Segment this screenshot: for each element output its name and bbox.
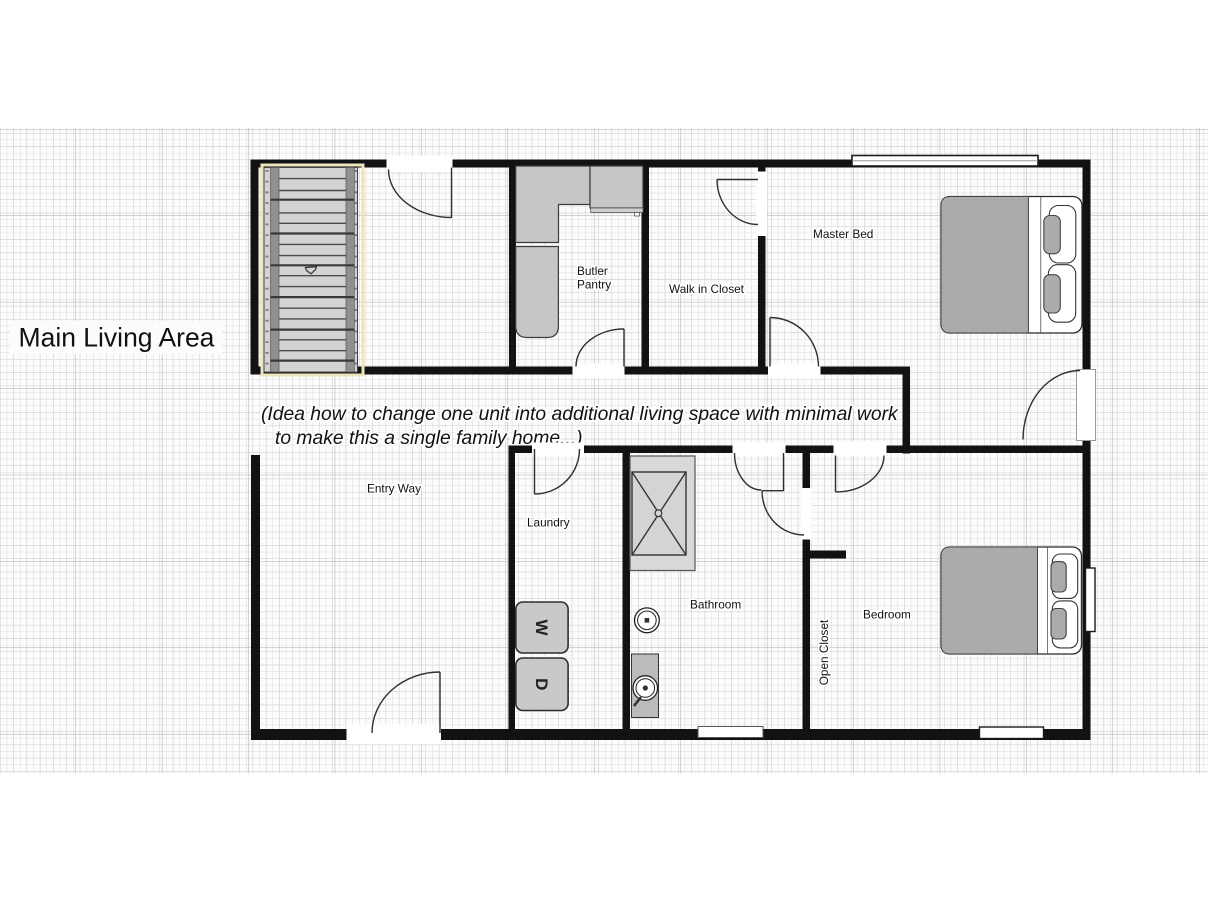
svg-text:Main Living Area: Main Living Area (19, 323, 215, 353)
svg-text:D: D (532, 678, 551, 690)
svg-text:W: W (532, 619, 551, 636)
svg-text:Bathroom: Bathroom (690, 598, 741, 612)
svg-text:Pantry: Pantry (577, 278, 611, 292)
svg-text:Walk in Closet: Walk in Closet (669, 282, 745, 296)
svg-text:Laundry: Laundry (527, 516, 570, 530)
svg-text:Butler: Butler (577, 264, 608, 278)
svg-text:Entry Way: Entry Way (367, 482, 421, 496)
svg-text:(Idea how to change one unit i: (Idea how to change one unit into additi… (261, 404, 899, 425)
svg-text:Master Bed: Master Bed (813, 227, 873, 241)
svg-text:Open Closet: Open Closet (817, 619, 831, 685)
svg-text:Bedroom: Bedroom (863, 608, 911, 622)
